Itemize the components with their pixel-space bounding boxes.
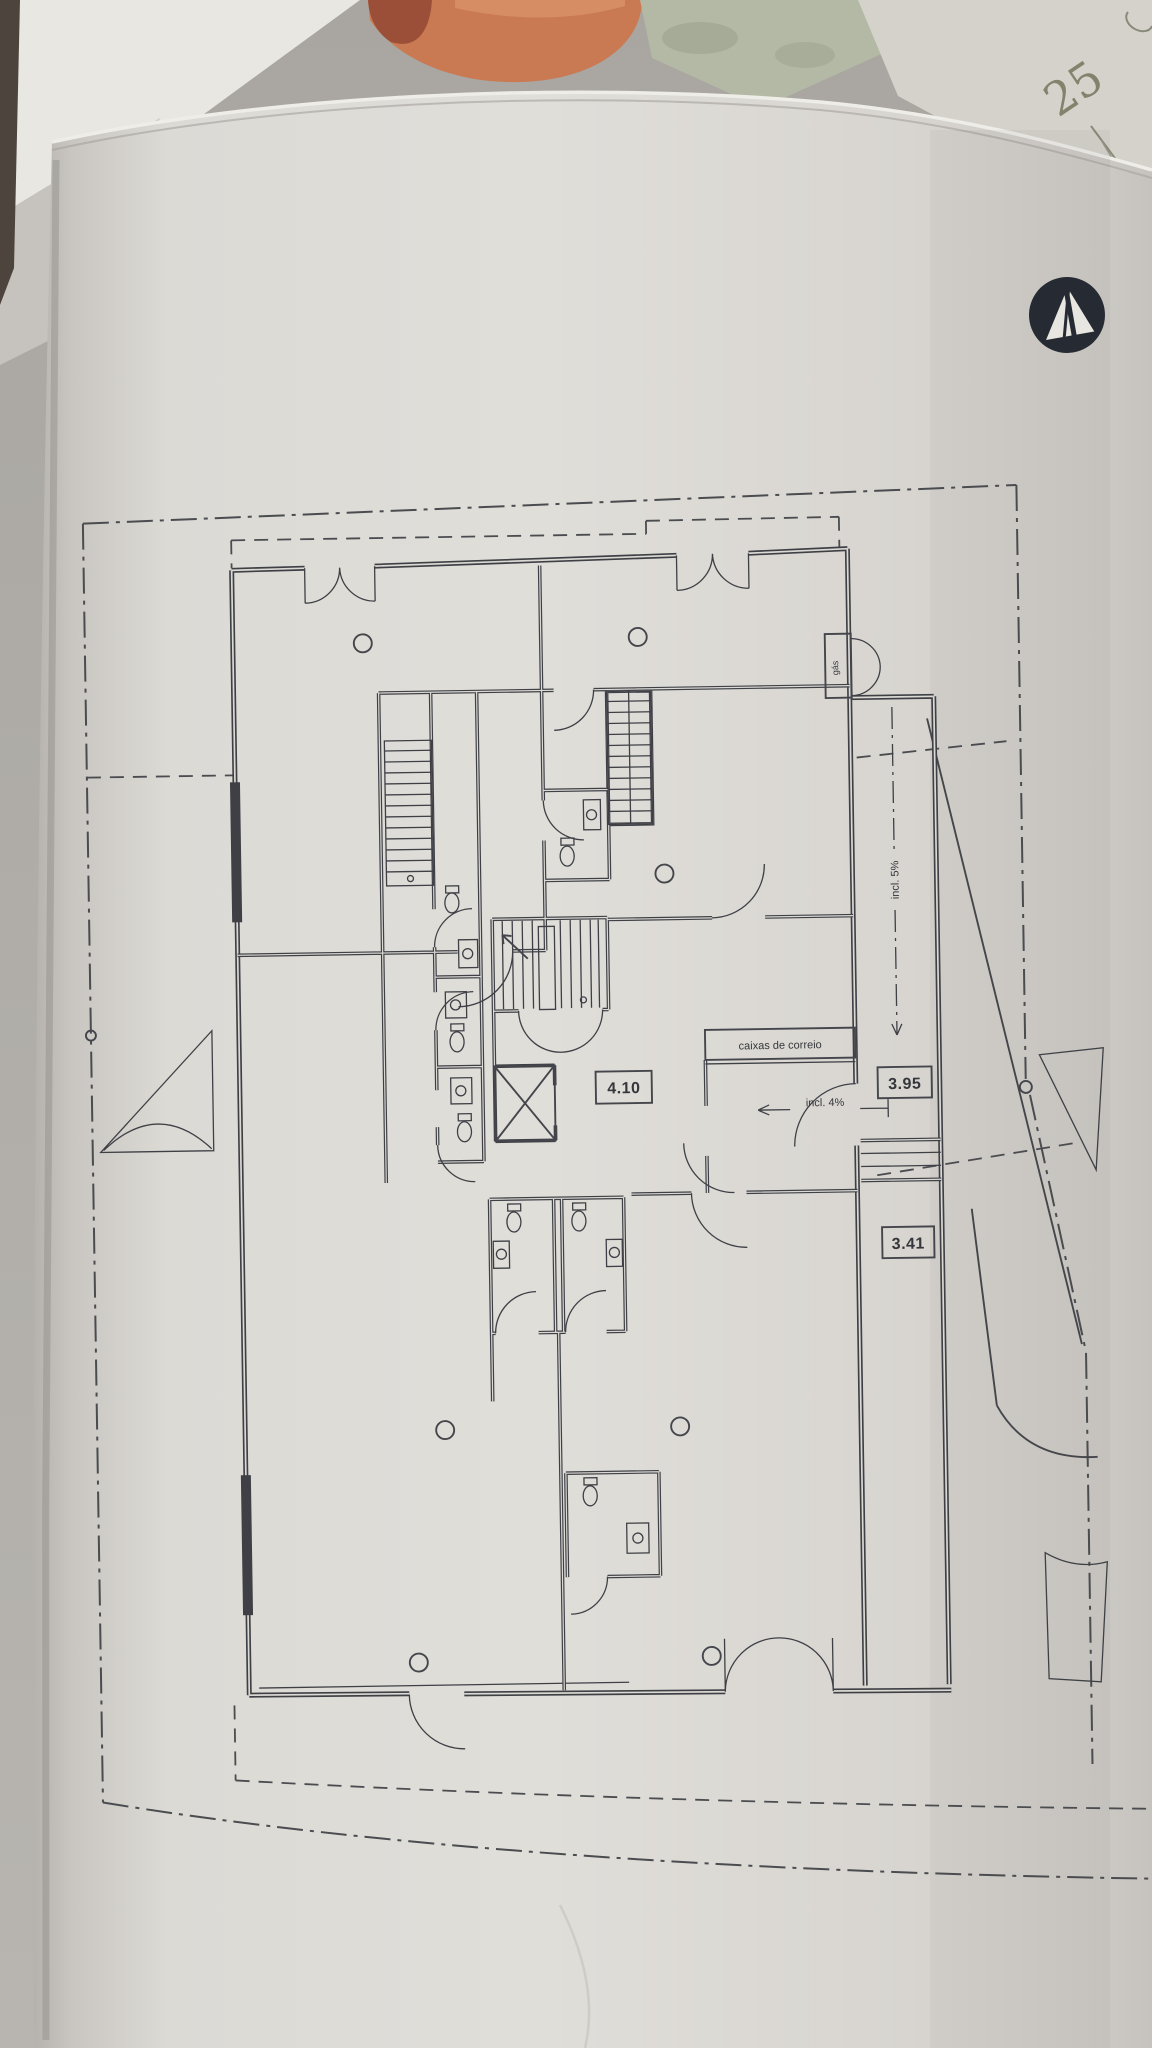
dim-395-value: 3.95	[888, 1076, 921, 1094]
photo-of-floor-plan: 25	[0, 0, 1152, 2048]
dim-341-value: 3.41	[892, 1236, 925, 1254]
slope-entry-label: incl. 4%	[806, 1097, 845, 1110]
niche-label: gás	[830, 660, 840, 675]
folder-mottle	[775, 42, 835, 68]
dim-410-value: 4.10	[607, 1080, 640, 1098]
slope-ramp-label: incl. 5%	[889, 860, 902, 899]
folder-mottle	[662, 22, 738, 54]
photo-canvas: 25	[0, 0, 1152, 2048]
mailboxes-label: caixas de correio	[739, 1039, 822, 1052]
paper-sheet	[33, 92, 1152, 2048]
